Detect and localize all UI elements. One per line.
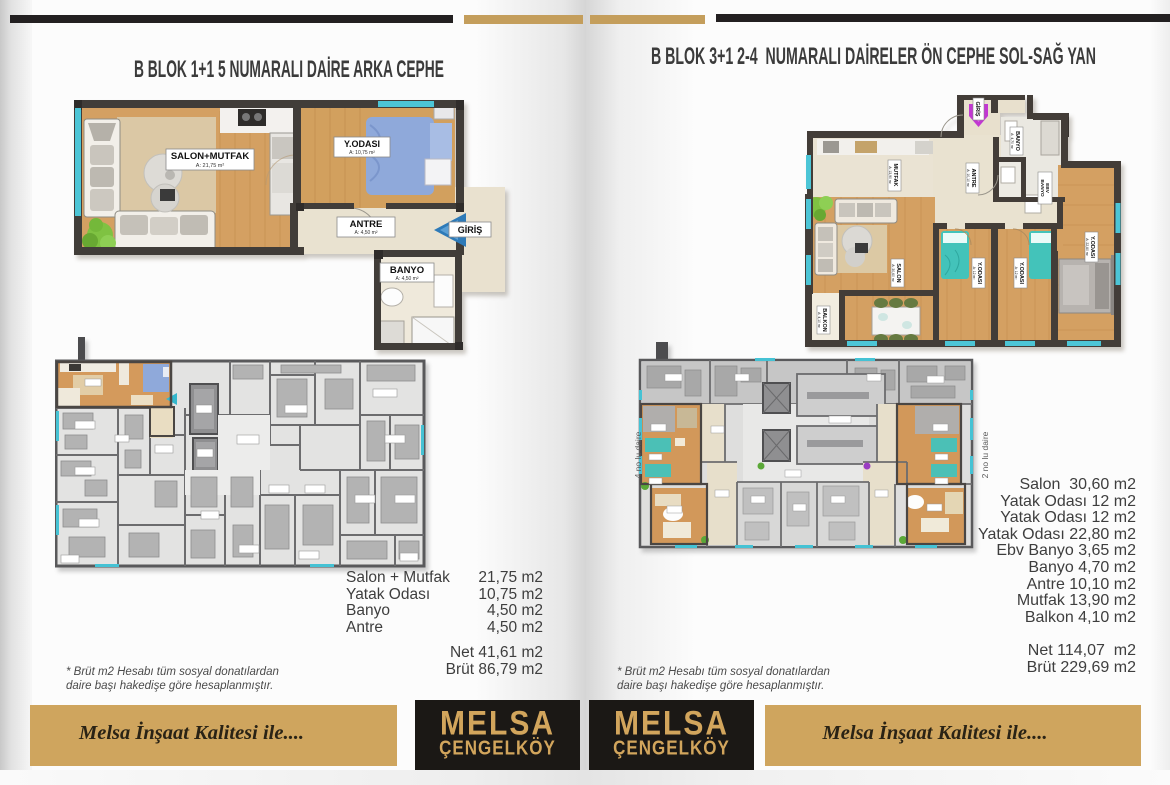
svg-text:BANYO: BANYO <box>390 265 424 276</box>
svg-text:A: 12 m²: A: 12 m² <box>972 267 976 281</box>
svg-text:A: 4,50 m²: A: 4,50 m² <box>395 276 418 282</box>
svg-text:A: 10,75 m²: A: 10,75 m² <box>349 150 375 156</box>
svg-text:GİRİŞ: GİRİŞ <box>458 225 483 235</box>
svg-text:A: 12 m²: A: 12 m² <box>1014 267 1018 281</box>
svg-text:A: 30,60 m²: A: 30,60 m² <box>891 264 895 282</box>
svg-text:BANYO: BANYO <box>1039 179 1045 197</box>
svg-text:Y.ODASI: Y.ODASI <box>344 139 380 149</box>
svg-text:A: 13,90 m²: A: 13,90 m² <box>888 166 892 184</box>
svg-text:A: 4,70 m²: A: 4,70 m² <box>1010 133 1014 150</box>
svg-text:A: 21,75 m²: A: 21,75 m² <box>196 163 225 169</box>
svg-text:ANTRE: ANTRE <box>350 219 383 230</box>
svg-text:A: 10,10 m²: A: 10,10 m² <box>966 169 970 187</box>
svg-text:GİRİŞ: GİRİŞ <box>974 102 981 117</box>
svg-text:A: 4,10 m²: A: 4,10 m² <box>817 312 821 329</box>
svg-text:A: 4,50 m²: A: 4,50 m² <box>354 230 377 236</box>
svg-text:A: 22,80 m²: A: 22,80 m² <box>1085 238 1089 256</box>
svg-text:SALON+MUTFAK: SALON+MUTFAK <box>171 151 250 162</box>
